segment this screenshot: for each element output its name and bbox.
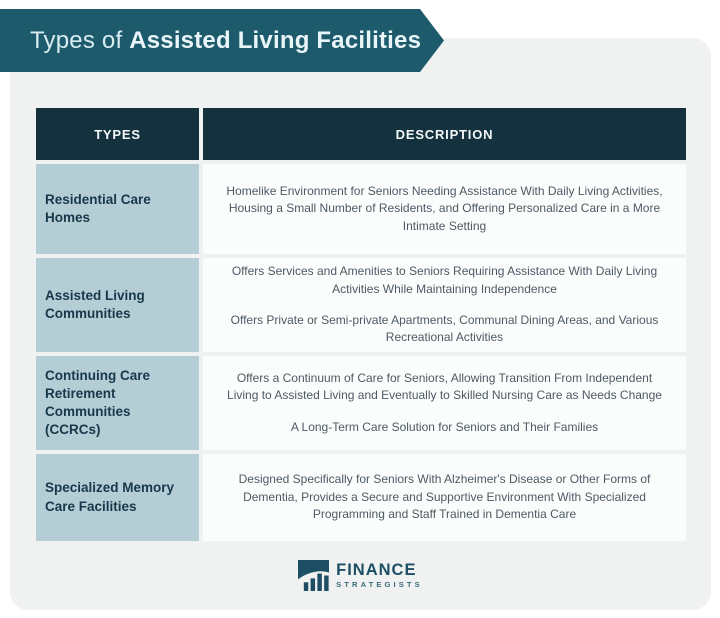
description-paragraph: Homelike Environment for Seniors Needing…: [223, 183, 666, 235]
brand-name: FINANCE: [336, 562, 416, 579]
finance-strategists-logo: FINANCE STRATEGISTS: [10, 560, 711, 591]
facilities-table: TYPES DESCRIPTION Residential Care Homes…: [36, 108, 686, 541]
type-label: Continuing Care Retirement Communities (…: [45, 367, 189, 440]
description-paragraph: A Long-Term Care Solution for Seniors an…: [223, 419, 666, 436]
table-row-description: Homelike Environment for Seniors Needing…: [203, 164, 686, 254]
infographic-page: Types of Assisted Living Facilities TYPE…: [0, 0, 720, 618]
description-paragraph: Offers a Continuum of Care for Seniors, …: [223, 370, 666, 405]
description-paragraph: Offers Private or Semi-private Apartment…: [223, 312, 666, 347]
column-header-types: TYPES: [36, 108, 199, 160]
column-header-description: DESCRIPTION: [203, 108, 686, 160]
page-title-bold: Assisted Living Facilities: [129, 27, 421, 54]
page-title-prefix: Types of: [30, 27, 129, 54]
type-label: Residential Care Homes: [45, 191, 189, 227]
bar-chart-swoosh-icon: [298, 560, 329, 591]
type-label: Specialized Memory Care Facilities: [45, 479, 189, 515]
table-row-description: Offers a Continuum of Care for Seniors, …: [203, 356, 686, 450]
page-title: Types of Assisted Living Facilities: [30, 27, 421, 55]
table-row-type-assisted-living-communities: Assisted Living Communities: [36, 258, 199, 352]
description-paragraph: Designed Specifically for Seniors With A…: [223, 471, 666, 523]
table-row-description: Offers Services and Amenities to Seniors…: [203, 258, 686, 352]
title-banner: Types of Assisted Living Facilities: [0, 9, 444, 72]
table-row-type-specialized-memory-care: Specialized Memory Care Facilities: [36, 454, 199, 541]
description-paragraph: Offers Services and Amenities to Seniors…: [223, 263, 666, 298]
logo-wordmark: FINANCE STRATEGISTS: [336, 562, 423, 589]
table-row-description: Designed Specifically for Seniors With A…: [203, 454, 686, 541]
table-row-type-residential-care-homes: Residential Care Homes: [36, 164, 199, 254]
type-label: Assisted Living Communities: [45, 287, 189, 323]
brand-subname: STRATEGISTS: [336, 581, 423, 589]
table-row-type-ccrcs: Continuing Care Retirement Communities (…: [36, 356, 199, 450]
